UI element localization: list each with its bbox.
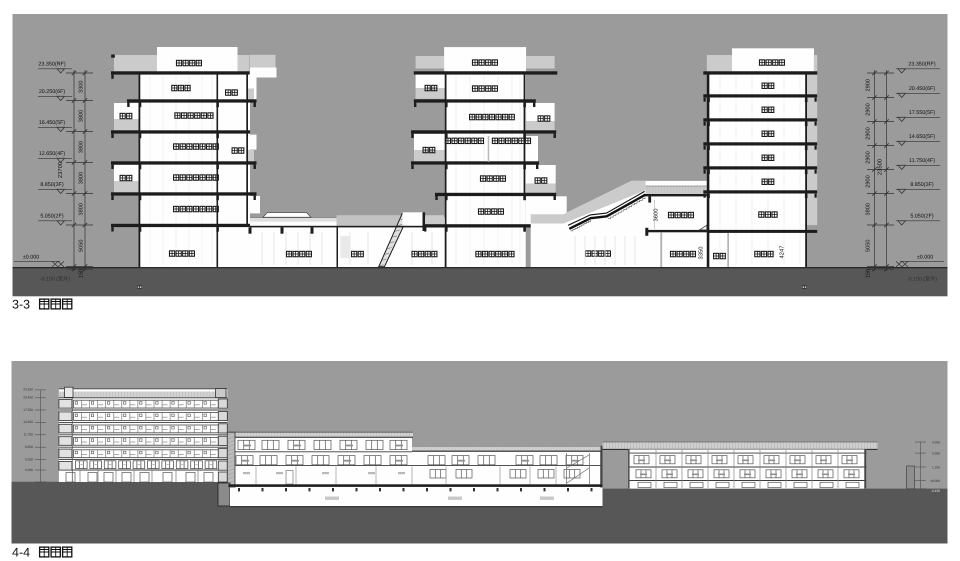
svg-text:20.250(6F): 20.250(6F)	[39, 89, 66, 95]
svg-text:2900: 2900	[866, 103, 872, 115]
svg-text:23500: 23500	[877, 159, 884, 175]
svg-text:±0.000: ±0.000	[930, 479, 940, 483]
svg-text:8.850(3F): 8.850(3F)	[910, 182, 934, 188]
svg-text:17.550: 17.550	[23, 408, 33, 412]
svg-text:±0.000: ±0.000	[917, 255, 933, 261]
svg-text:5.050(2F): 5.050(2F)	[910, 214, 934, 220]
svg-text:11.750: 11.750	[23, 433, 33, 437]
svg-text:3800: 3800	[866, 203, 872, 215]
svg-text:150: 150	[866, 269, 872, 278]
svg-text:3600: 3600	[653, 209, 660, 222]
svg-text:20.450: 20.450	[23, 396, 33, 400]
svg-text:3800: 3800	[79, 110, 85, 122]
svg-text:4-4: 4-4	[12, 546, 30, 560]
svg-text:-0.150 (室外): -0.150 (室外)	[907, 276, 937, 283]
svg-text:2900: 2900	[866, 79, 872, 91]
svg-text:5050: 5050	[79, 240, 85, 252]
svg-text:5.050: 5.050	[932, 452, 940, 456]
svg-text:5.050: 5.050	[25, 457, 33, 461]
svg-text:3800: 3800	[79, 172, 85, 184]
svg-text:23700: 23700	[57, 162, 64, 178]
svg-text:9.050: 9.050	[932, 441, 940, 445]
svg-text:2900: 2900	[866, 175, 872, 187]
svg-text:0.000: 0.000	[25, 468, 33, 472]
svg-text:5.050(2F): 5.050(2F)	[40, 214, 64, 220]
svg-text:12.650(4F): 12.650(4F)	[39, 151, 66, 157]
svg-text:150: 150	[79, 269, 85, 278]
svg-text:4247: 4247	[779, 246, 786, 259]
svg-text:3350: 3350	[698, 247, 705, 260]
svg-text:23.350: 23.350	[23, 388, 33, 392]
svg-text:1.250: 1.250	[932, 466, 940, 470]
svg-text:3-3: 3-3	[12, 298, 30, 312]
svg-text:17.550(5F): 17.550(5F)	[909, 110, 936, 116]
svg-text:20.450(6F): 20.450(6F)	[909, 86, 936, 92]
svg-text:8.850(3F): 8.850(3F)	[40, 182, 64, 188]
svg-text:23.350(RF): 23.350(RF)	[908, 62, 935, 68]
svg-text:23.350(RF): 23.350(RF)	[38, 62, 65, 68]
svg-text:±0.000: ±0.000	[23, 255, 39, 261]
svg-text:5050: 5050	[866, 240, 872, 252]
svg-text:14.650(5F): 14.650(5F)	[909, 134, 936, 140]
svg-text:11.750(4F): 11.750(4F)	[909, 158, 935, 164]
svg-text:3800: 3800	[79, 203, 85, 215]
svg-text:8.850: 8.850	[25, 445, 33, 449]
svg-text:-0.150 (室外): -0.150 (室外)	[40, 276, 70, 283]
svg-text:14.650: 14.650	[23, 420, 33, 424]
svg-text:3300: 3300	[79, 81, 85, 93]
svg-text:3800: 3800	[79, 141, 85, 153]
svg-text:2900: 2900	[866, 151, 872, 163]
svg-text:-0.450: -0.450	[931, 489, 940, 493]
svg-text:2900: 2900	[866, 127, 872, 139]
svg-text:16.450(5F): 16.450(5F)	[39, 120, 66, 126]
